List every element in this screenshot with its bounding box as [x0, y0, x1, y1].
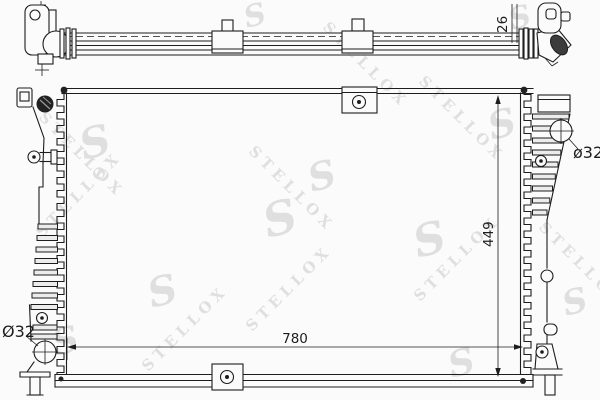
- core-top-band: [62, 89, 533, 94]
- dimension-label-right-port: ø32: [573, 143, 600, 162]
- top-view-left-mount: [25, 1, 76, 76]
- front-top-bracket: [342, 87, 377, 113]
- watermark-logo: S: [408, 211, 452, 268]
- mount-hole: [30, 10, 40, 20]
- watermark-layer: STELLOX STELLOX STELLOX STELLOX STELLOX …: [32, 0, 600, 387]
- right-tab-round: [541, 270, 553, 282]
- corner-peg: [521, 87, 528, 94]
- top-view: 26: [25, 1, 571, 76]
- dimension-label-449: 449: [481, 221, 497, 247]
- left-pin-bracket: [28, 150, 57, 164]
- dimension-label-left-port: Ø32: [2, 322, 35, 341]
- radiator-technical-drawing: STELLOX STELLOX STELLOX STELLOX STELLOX …: [0, 0, 600, 400]
- left-port-label: Ø32: [2, 322, 38, 346]
- top-view-bracket-a: [212, 20, 243, 53]
- watermark-logo: S: [558, 280, 592, 325]
- right-port-label: ø32: [569, 139, 600, 162]
- right-tab: [544, 324, 557, 335]
- top-view-bar: [65, 33, 520, 55]
- drawing-canvas: STELLOX STELLOX STELLOX STELLOX STELLOX …: [0, 0, 600, 400]
- watermark-text: STELLOX: [242, 242, 335, 335]
- watermark-logo: S: [240, 0, 270, 36]
- corner-peg: [61, 87, 68, 94]
- top-view-bracket-b: [342, 19, 373, 53]
- watermark-logo: S: [142, 265, 182, 318]
- right-foot: [533, 344, 562, 395]
- hose-coupler-left: [43, 31, 69, 57]
- watermark-logo: S: [443, 339, 479, 386]
- serrated-edge-right: [524, 88, 531, 374]
- corner-peg: [59, 377, 64, 382]
- dimension-label-26: 26: [495, 16, 511, 33]
- corner-peg: [520, 378, 526, 384]
- left-foot: [20, 362, 50, 395]
- mount-hole: [546, 9, 556, 19]
- front-bottom-bracket: [212, 364, 243, 390]
- dimension-label-780: 780: [282, 331, 308, 347]
- right-top-bracket: [538, 95, 570, 112]
